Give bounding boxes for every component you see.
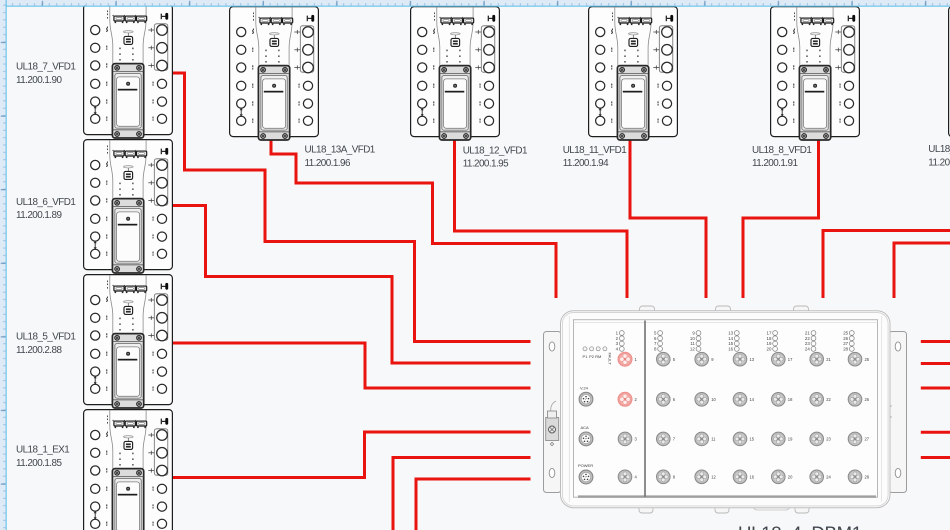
svg-text:11.200.2.88: 11.200.2.88 [16, 345, 62, 356]
svg-text:25: 25 [865, 357, 870, 362]
svg-text:12: 12 [690, 346, 695, 351]
svg-text:11.200.1.91: 11.200.1.91 [752, 158, 798, 169]
svg-text:28: 28 [843, 346, 848, 351]
svg-text:19: 19 [767, 341, 772, 346]
svg-text:11.200.1.94: 11.200.1.94 [563, 158, 609, 169]
svg-text:UL18_7_VFD1: UL18_7_VFD1 [16, 62, 76, 73]
svg-text:11: 11 [711, 437, 716, 442]
svg-text:23: 23 [826, 437, 831, 442]
svg-text:P2: P2 [589, 354, 595, 359]
svg-text:22: 22 [805, 336, 810, 341]
svg-text:26: 26 [865, 397, 870, 402]
svg-text:11.200.1.90: 11.200.1.90 [16, 75, 62, 86]
svg-text:UL18_12_VFD1: UL18_12_VFD1 [463, 145, 528, 156]
svg-text:UL18_5_VFD1: UL18_5_VFD1 [16, 332, 76, 343]
svg-text:UL18_8_VFD1: UL18_8_VFD1 [752, 145, 812, 156]
svg-text:24: 24 [826, 474, 831, 479]
svg-text:18: 18 [788, 397, 793, 402]
svg-text:UL18_4_DBM1: UL18_4_DBM1 [738, 523, 862, 530]
svg-text:16: 16 [750, 474, 755, 479]
svg-text:11.200.1.85: 11.200.1.85 [16, 458, 62, 469]
svg-text:14: 14 [728, 336, 733, 341]
svg-text:13: 13 [728, 331, 733, 336]
svg-text:POWER: POWER [578, 463, 593, 468]
svg-text:UL18_11_VFD1: UL18_11_VFD1 [563, 145, 628, 156]
svg-text:17: 17 [788, 357, 793, 362]
svg-text:18: 18 [767, 336, 772, 341]
svg-text:17: 17 [767, 331, 772, 336]
svg-text:V.24: V.24 [580, 385, 589, 390]
svg-text:24: 24 [805, 346, 810, 351]
svg-text:UL18_6_VFD1: UL18_6_VFD1 [16, 197, 76, 208]
svg-text:28: 28 [865, 474, 870, 479]
svg-text:10: 10 [711, 397, 716, 402]
svg-text:12: 12 [711, 474, 716, 479]
svg-text:16: 16 [728, 346, 733, 351]
svg-text:11.200.1.95: 11.200.1.95 [463, 159, 509, 170]
svg-text:UL18_10_VFD1: UL18_10_VFD1 [928, 144, 950, 155]
svg-text:27: 27 [865, 437, 870, 442]
svg-text:13: 13 [750, 357, 755, 362]
svg-text:26: 26 [843, 336, 848, 341]
svg-text:25: 25 [843, 331, 848, 336]
svg-text:11: 11 [690, 341, 695, 346]
svg-text:10: 10 [690, 336, 695, 341]
svg-text:20: 20 [767, 346, 772, 351]
svg-text:11.200.1.96: 11.200.1.96 [305, 158, 351, 169]
svg-text:21: 21 [826, 357, 831, 362]
svg-text:20: 20 [788, 474, 793, 479]
svg-text:14: 14 [750, 397, 755, 402]
svg-text:UL18_13A_VFD1: UL18_13A_VFD1 [305, 145, 376, 156]
svg-text:23: 23 [805, 341, 810, 346]
svg-text:11.200.1.93: 11.200.1.93 [928, 158, 950, 169]
svg-text:FAULT: FAULT [607, 353, 612, 366]
svg-text:UL18_1_EX1: UL18_1_EX1 [16, 445, 70, 456]
svg-text:19: 19 [788, 437, 793, 442]
svg-text:27: 27 [843, 341, 848, 346]
svg-text:21: 21 [805, 331, 810, 336]
svg-text:22: 22 [826, 397, 831, 402]
svg-text:RM: RM [595, 354, 601, 359]
svg-text:15: 15 [728, 341, 733, 346]
svg-text:ACA: ACA [581, 425, 590, 430]
svg-text:P1: P1 [583, 354, 589, 359]
svg-text:11.200.1.89: 11.200.1.89 [16, 210, 62, 221]
svg-text:15: 15 [750, 437, 755, 442]
